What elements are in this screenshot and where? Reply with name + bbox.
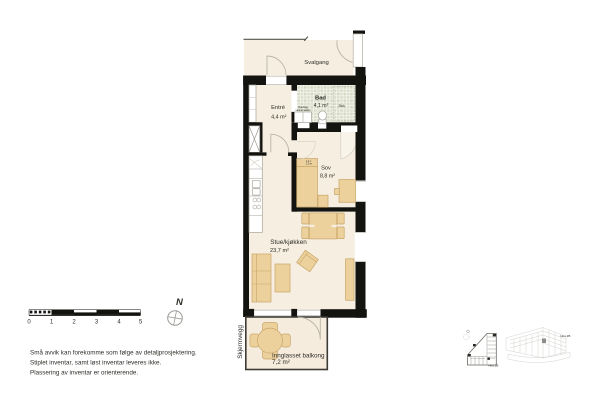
svg-text:Skjermvegg: Skjermvegg	[237, 325, 244, 359]
svg-text:5: 5	[139, 320, 143, 326]
svg-text:Hus 2B: Hus 2B	[561, 334, 571, 338]
svg-text:4,4 m²: 4,4 m²	[271, 115, 286, 121]
svg-text:4,1 m²: 4,1 m²	[314, 103, 329, 109]
svg-text:N: N	[176, 297, 184, 308]
svg-text:2,0 m: 2,0 m	[306, 162, 312, 165]
svg-text:Stue/kjøkken: Stue/kjøkken	[270, 239, 307, 246]
svg-text:Bad: Bad	[315, 95, 326, 101]
svg-text:Entré: Entré	[271, 105, 285, 111]
svg-text:0: 0	[27, 320, 31, 326]
svg-text:23,7 m²: 23,7 m²	[270, 248, 289, 254]
svg-text:4: 4	[117, 320, 121, 326]
svg-text:Stiplet inventar, samt løst in: Stiplet inventar, samt løst inventar lev…	[30, 360, 161, 367]
svg-text:3: 3	[95, 320, 99, 326]
svg-text:Sluk: Sluk	[339, 104, 346, 108]
svg-text:Små avvik kan forekomme som fø: Små avvik kan forekomme som følge av det…	[30, 349, 197, 357]
svg-text:8,8 m²: 8,8 m²	[320, 173, 335, 179]
svg-text:7,2 m²: 7,2 m²	[272, 359, 290, 366]
svg-text:vaskemaskin: vaskemaskin	[296, 108, 312, 112]
svg-text:Plassering av inventar er orie: Plassering av inventar er orienterende.	[30, 370, 138, 377]
svg-text:1: 1	[50, 320, 54, 326]
svg-text:Svalgang: Svalgang	[304, 60, 329, 66]
svg-text:Sov: Sov	[321, 166, 331, 172]
svg-text:Hus 2B: Hus 2B	[489, 364, 499, 368]
svg-text:2: 2	[72, 320, 76, 326]
